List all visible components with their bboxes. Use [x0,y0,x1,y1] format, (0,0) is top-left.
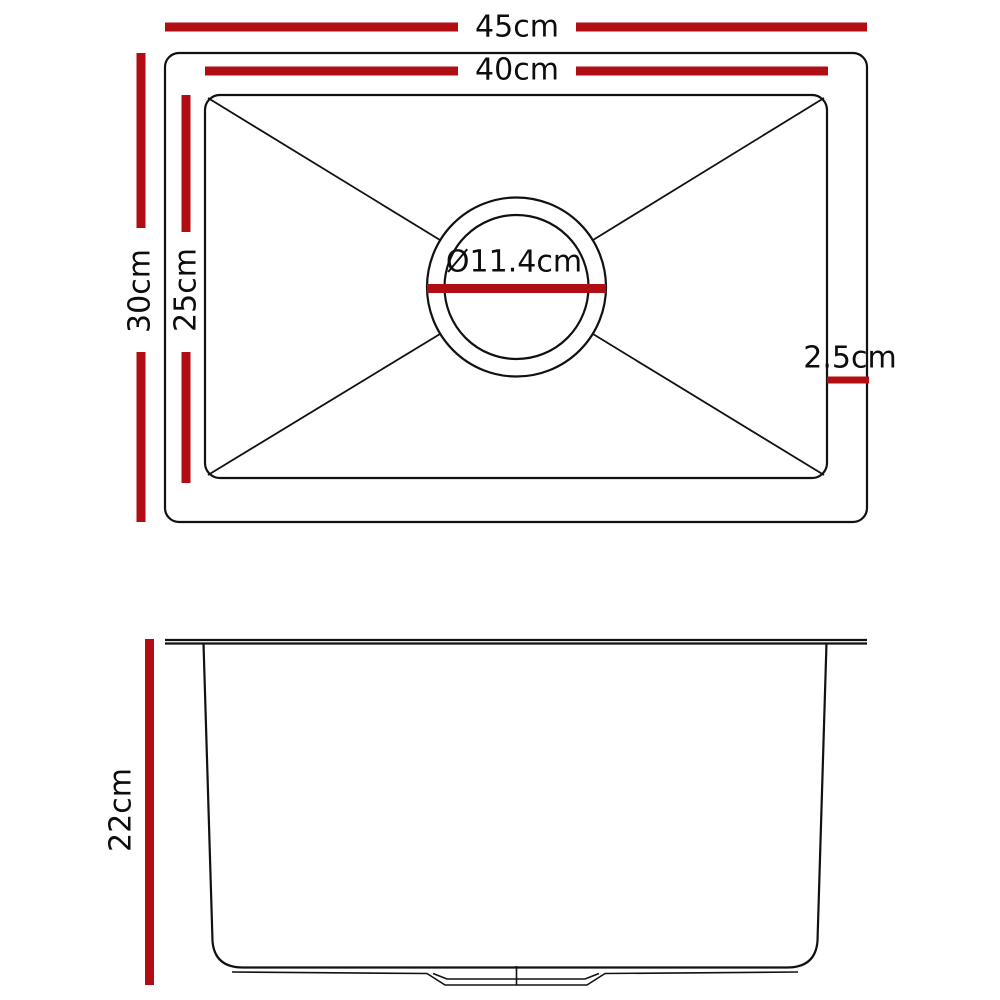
dim-outer-depth-label: 30cm [123,249,158,333]
dim-rim-offset: 2.5cm [803,341,896,381]
sink-dimension-diagram: 45cm 40cm 30cm 25cm [0,0,1000,1000]
dim-height: 22cm [104,639,150,985]
bowl-diagonal-top-left [208,98,440,240]
side-view-bowl-profile [204,643,827,968]
dim-inner-depth-label: 25cm [169,248,204,332]
dim-rim-offset-label: 2.5cm [803,341,896,376]
bowl-diagonal-top-right [593,98,824,240]
dim-outer-width: 45cm [165,10,867,45]
dim-drain-diameter: Ø11.4cm [427,245,606,289]
dim-height-label: 22cm [104,768,139,852]
sink-dimension-diagram-page: 45cm 40cm 30cm 25cm [0,0,1000,1000]
top-view: 45cm 40cm 30cm 25cm [123,10,897,523]
dim-drain-diameter-label: Ø11.4cm [446,245,582,280]
side-view: 22cm [104,639,868,985]
bowl-diagonal-bottom-left [208,334,440,475]
dim-outer-depth: 30cm [123,53,158,522]
dim-inner-depth: 25cm [169,95,204,483]
dim-outer-width-label: 45cm [475,10,559,45]
bowl-diagonal-bottom-right [593,334,824,475]
dim-inner-width-label: 40cm [475,53,559,88]
dim-inner-width: 40cm [205,53,828,88]
